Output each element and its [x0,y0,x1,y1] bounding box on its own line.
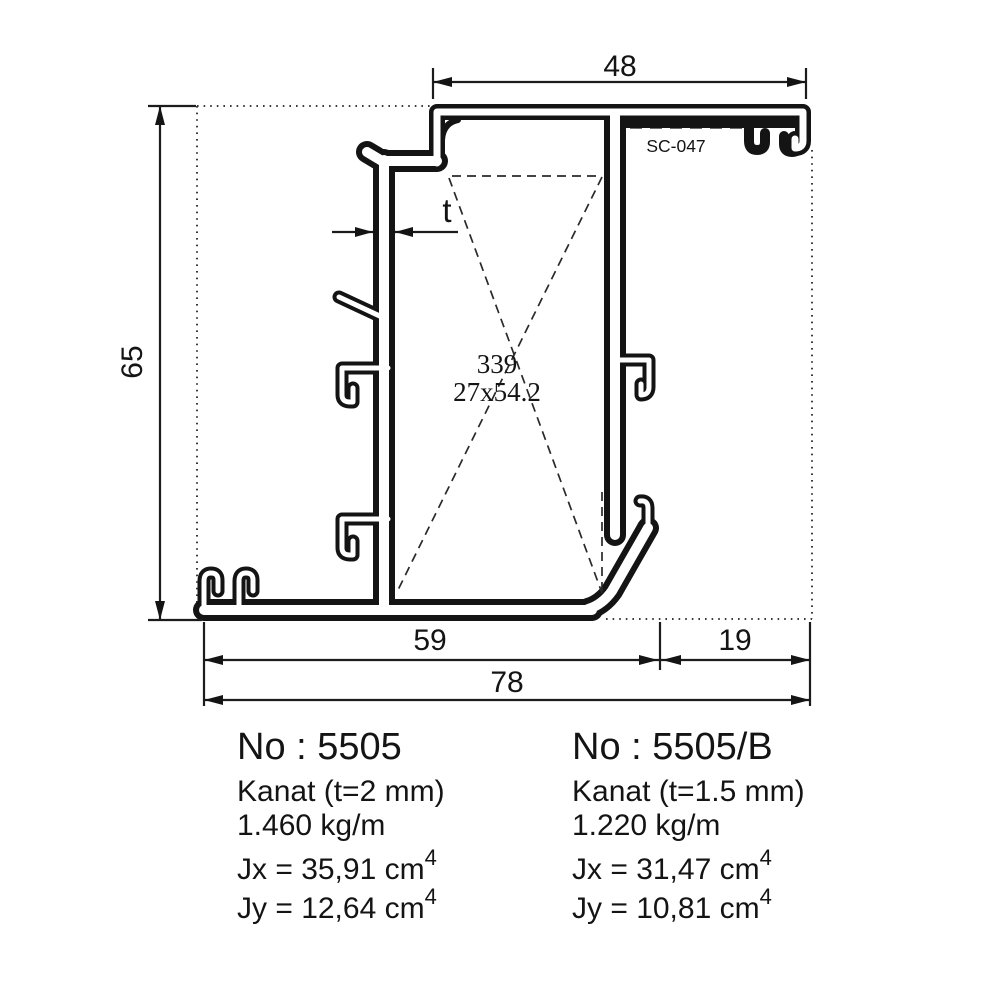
spec-left-weight: 1.460 kg/m [237,809,385,842]
spec-block-left: No : 5505 Kanat (t=2 mm) 1.460 kg/m Jx =… [237,726,445,925]
dimension-59-label: 59 [413,624,446,657]
dimension-78-label: 78 [490,666,523,699]
spec-right-no: No : 5505/B [572,726,773,768]
spec-left-no: No : 5505 [237,726,402,768]
spec-left-type: Kanat (t=2 mm) [237,775,445,808]
dimension-19-label: 19 [718,624,751,657]
chamber-size-label: 27x54.2 [453,377,541,407]
profile-hooks [204,297,649,606]
spec-left-jy: Jy = 12,64 cm4 [237,884,437,925]
spec-left-jx: Jx = 35,91 cm4 [237,845,437,886]
profile-fillet [442,120,458,166]
dimension-48-label: 48 [603,50,636,83]
technical-drawing-page: 48 65 t 59 19 78 SC-047 339 27x54.2 No :… [0,0,1000,1000]
spec-right-weight: 1.220 kg/m [572,809,720,842]
spec-block-right: No : 5505/B Kanat (t=1.5 mm) 1.220 kg/m … [572,726,805,925]
spec-right-jy: Jy = 10,81 cm4 [572,884,772,925]
spec-right-type: Kanat (t=1.5 mm) [572,775,805,808]
chamber-area-label: 339 [477,349,518,379]
spec-right-jx: Jx = 31,47 cm4 [572,845,772,886]
thickness-label: t [442,192,451,229]
profile-drawing-canvas: 48 65 t 59 19 78 SC-047 339 27x54.2 No :… [0,0,1000,1000]
dimension-65-label: 65 [116,345,149,378]
accessory-code-label: SC-047 [646,136,705,156]
